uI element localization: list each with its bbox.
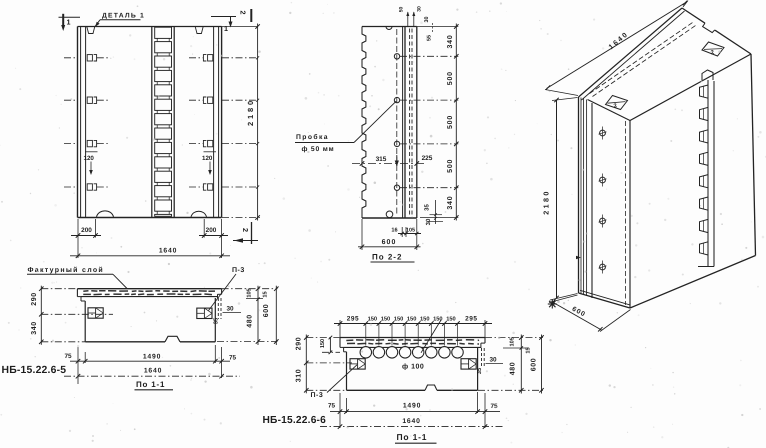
svg-text:ф 50 мм: ф 50 мм bbox=[302, 146, 335, 153]
svg-text:Фактурный слой: Фактурный слой bbox=[28, 266, 105, 274]
svg-text:200: 200 bbox=[81, 227, 92, 234]
svg-text:500: 500 bbox=[447, 159, 454, 173]
svg-text:1490: 1490 bbox=[403, 403, 421, 410]
svg-text:30: 30 bbox=[490, 357, 498, 364]
svg-text:310: 310 bbox=[295, 369, 302, 382]
svg-text:150: 150 bbox=[433, 317, 443, 323]
svg-text:1640: 1640 bbox=[402, 418, 420, 425]
svg-text:75: 75 bbox=[328, 403, 336, 410]
svg-text:НБ-15.22.6-5: НБ-15.22.6-5 bbox=[2, 365, 67, 376]
svg-text:2180: 2180 bbox=[542, 189, 551, 215]
svg-text:15: 15 bbox=[262, 291, 268, 297]
svg-text:По 1-1: По 1-1 bbox=[136, 380, 165, 389]
svg-text:ф 100: ф 100 bbox=[402, 363, 424, 371]
svg-text:35: 35 bbox=[476, 367, 483, 374]
svg-text:ДЕТАЛЬ 1: ДЕТАЛЬ 1 bbox=[102, 13, 145, 20]
svg-text:НБ-15.22.6-6: НБ-15.22.6-6 bbox=[263, 415, 327, 426]
svg-text:По 1-1: По 1-1 bbox=[397, 432, 428, 442]
svg-text:2180: 2180 bbox=[246, 98, 255, 126]
svg-text:295: 295 bbox=[465, 316, 477, 323]
svg-text:105: 105 bbox=[509, 337, 515, 346]
svg-text:120: 120 bbox=[202, 155, 213, 162]
svg-text:2: 2 bbox=[241, 228, 250, 232]
svg-text:500: 500 bbox=[447, 71, 454, 85]
svg-text:Пробка: Пробка bbox=[296, 134, 329, 141]
svg-text:105: 105 bbox=[406, 228, 415, 234]
svg-text:1640: 1640 bbox=[159, 248, 177, 255]
svg-text:75: 75 bbox=[64, 353, 72, 360]
svg-text:120: 120 bbox=[84, 155, 95, 162]
svg-text:340: 340 bbox=[447, 196, 454, 210]
svg-text:600: 600 bbox=[263, 304, 270, 317]
svg-text:35: 35 bbox=[213, 317, 220, 324]
svg-text:200: 200 bbox=[206, 227, 217, 234]
svg-text:480: 480 bbox=[510, 362, 517, 375]
svg-text:П-3: П-3 bbox=[311, 392, 324, 399]
svg-text:П-3: П-3 bbox=[232, 267, 245, 274]
svg-text:500: 500 bbox=[447, 115, 454, 129]
svg-text:30: 30 bbox=[417, 6, 423, 12]
svg-text:16: 16 bbox=[391, 228, 397, 234]
svg-text:105: 105 bbox=[247, 288, 253, 297]
svg-text:1640: 1640 bbox=[144, 368, 162, 375]
svg-text:150: 150 bbox=[420, 317, 430, 323]
svg-text:295: 295 bbox=[347, 316, 359, 323]
svg-text:55: 55 bbox=[427, 35, 433, 41]
svg-text:30: 30 bbox=[424, 17, 430, 23]
svg-text:2: 2 bbox=[239, 11, 248, 15]
svg-text:1490: 1490 bbox=[143, 354, 161, 361]
svg-text:480: 480 bbox=[246, 314, 253, 327]
svg-text:30: 30 bbox=[425, 218, 432, 225]
svg-text:По 2-2: По 2-2 bbox=[372, 253, 402, 262]
svg-text:600: 600 bbox=[382, 239, 397, 246]
svg-text:150: 150 bbox=[394, 317, 404, 323]
svg-text:50: 50 bbox=[399, 7, 405, 13]
svg-text:1: 1 bbox=[224, 24, 228, 33]
svg-text:30: 30 bbox=[227, 306, 235, 313]
svg-text:150: 150 bbox=[381, 317, 391, 323]
svg-text:15: 15 bbox=[526, 347, 532, 353]
svg-text:1: 1 bbox=[67, 18, 71, 27]
svg-text:150: 150 bbox=[320, 339, 326, 348]
svg-text:150: 150 bbox=[368, 317, 378, 323]
svg-text:340: 340 bbox=[447, 34, 454, 48]
svg-text:35: 35 bbox=[424, 204, 431, 211]
svg-text:150: 150 bbox=[446, 317, 456, 323]
svg-text:150: 150 bbox=[407, 317, 417, 323]
svg-text:290: 290 bbox=[31, 292, 38, 305]
svg-text:600: 600 bbox=[530, 358, 537, 371]
svg-text:340: 340 bbox=[31, 321, 38, 334]
svg-text:225: 225 bbox=[422, 155, 433, 162]
svg-text:290: 290 bbox=[295, 337, 302, 350]
svg-text:315: 315 bbox=[376, 156, 387, 163]
svg-text:75: 75 bbox=[229, 355, 237, 362]
